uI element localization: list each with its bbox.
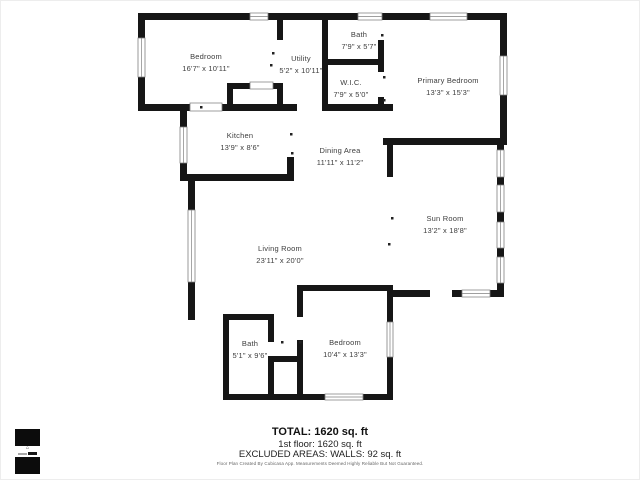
room-name: Kitchen — [220, 130, 259, 142]
room-dimensions: 23'11" x 20'0" — [256, 255, 304, 267]
room-label-wic: W.I.C. 7'9" x 5'0" — [334, 77, 369, 101]
room-name: Utility — [279, 53, 322, 65]
room-dimensions: 11'11" x 11'2" — [317, 157, 363, 169]
excluded-areas-text: EXCLUDED AREAS: WALLS: 92 sq. ft — [0, 449, 640, 460]
logo-bar-light — [18, 453, 27, 455]
total-area-text: TOTAL: 1620 sq. ft — [0, 426, 640, 438]
room-dimensions: 13'9" x 8'6" — [220, 142, 259, 154]
logo-top-block — [15, 429, 40, 446]
room-label-sun-room: Sun Room 13'2" x 18'8" — [423, 213, 467, 237]
logo-band: ⌂ — [15, 446, 40, 457]
logo-bottom-block — [15, 457, 40, 474]
room-dimensions: 10'4" x 13'3" — [323, 349, 367, 361]
room-name: Sun Room — [423, 213, 467, 225]
room-label-kitchen: Kitchen 13'9" x 8'6" — [220, 130, 259, 154]
disclaimer-text: Floor Plan Created By Cubicasa App. Meas… — [0, 461, 640, 466]
room-name: Bath — [233, 338, 268, 350]
room-dimensions: 5'1" x 9'6" — [233, 350, 268, 362]
logo-text-mark — [15, 451, 40, 456]
room-name: Bedroom — [182, 51, 230, 63]
room-label-living-room: Living Room 23'11" x 20'0" — [256, 243, 304, 267]
room-dimensions: 7'9" x 5'7" — [342, 41, 377, 53]
room-dimensions: 7'9" x 5'0" — [334, 89, 369, 101]
room-label-bath-bottom: Bath 5'1" x 9'6" — [233, 338, 268, 362]
room-label-utility: Utility 5'2" x 10'11" — [279, 53, 322, 77]
floorplan-image: Bedroom 16'7" x 10'11" Utility 5'2" x 10… — [0, 0, 640, 480]
watermark-logo: ⌂ — [15, 429, 40, 474]
room-name: W.I.C. — [334, 77, 369, 89]
room-label-bath-top: Bath 7'9" x 5'7" — [342, 29, 377, 53]
room-name: Bedroom — [323, 337, 367, 349]
room-label-dining-area: Dining Area 11'11" x 11'2" — [317, 145, 363, 169]
room-dimensions: 13'3" x 15'3" — [417, 87, 478, 99]
room-dimensions: 13'2" x 18'8" — [423, 225, 467, 237]
room-name: Bath — [342, 29, 377, 41]
room-dimensions: 5'2" x 10'11" — [279, 65, 322, 77]
room-name: Dining Area — [317, 145, 363, 157]
room-label-bedroom-topleft: Bedroom 16'7" x 10'11" — [182, 51, 230, 75]
room-name: Primary Bedroom — [417, 75, 478, 87]
room-label-bedroom-bottom: Bedroom 10'4" x 13'3" — [323, 337, 367, 361]
room-dimensions: 16'7" x 10'11" — [182, 63, 230, 75]
room-label-primary-bedroom: Primary Bedroom 13'3" x 15'3" — [417, 75, 478, 99]
logo-bar-dark — [28, 452, 37, 455]
room-name: Living Room — [256, 243, 304, 255]
